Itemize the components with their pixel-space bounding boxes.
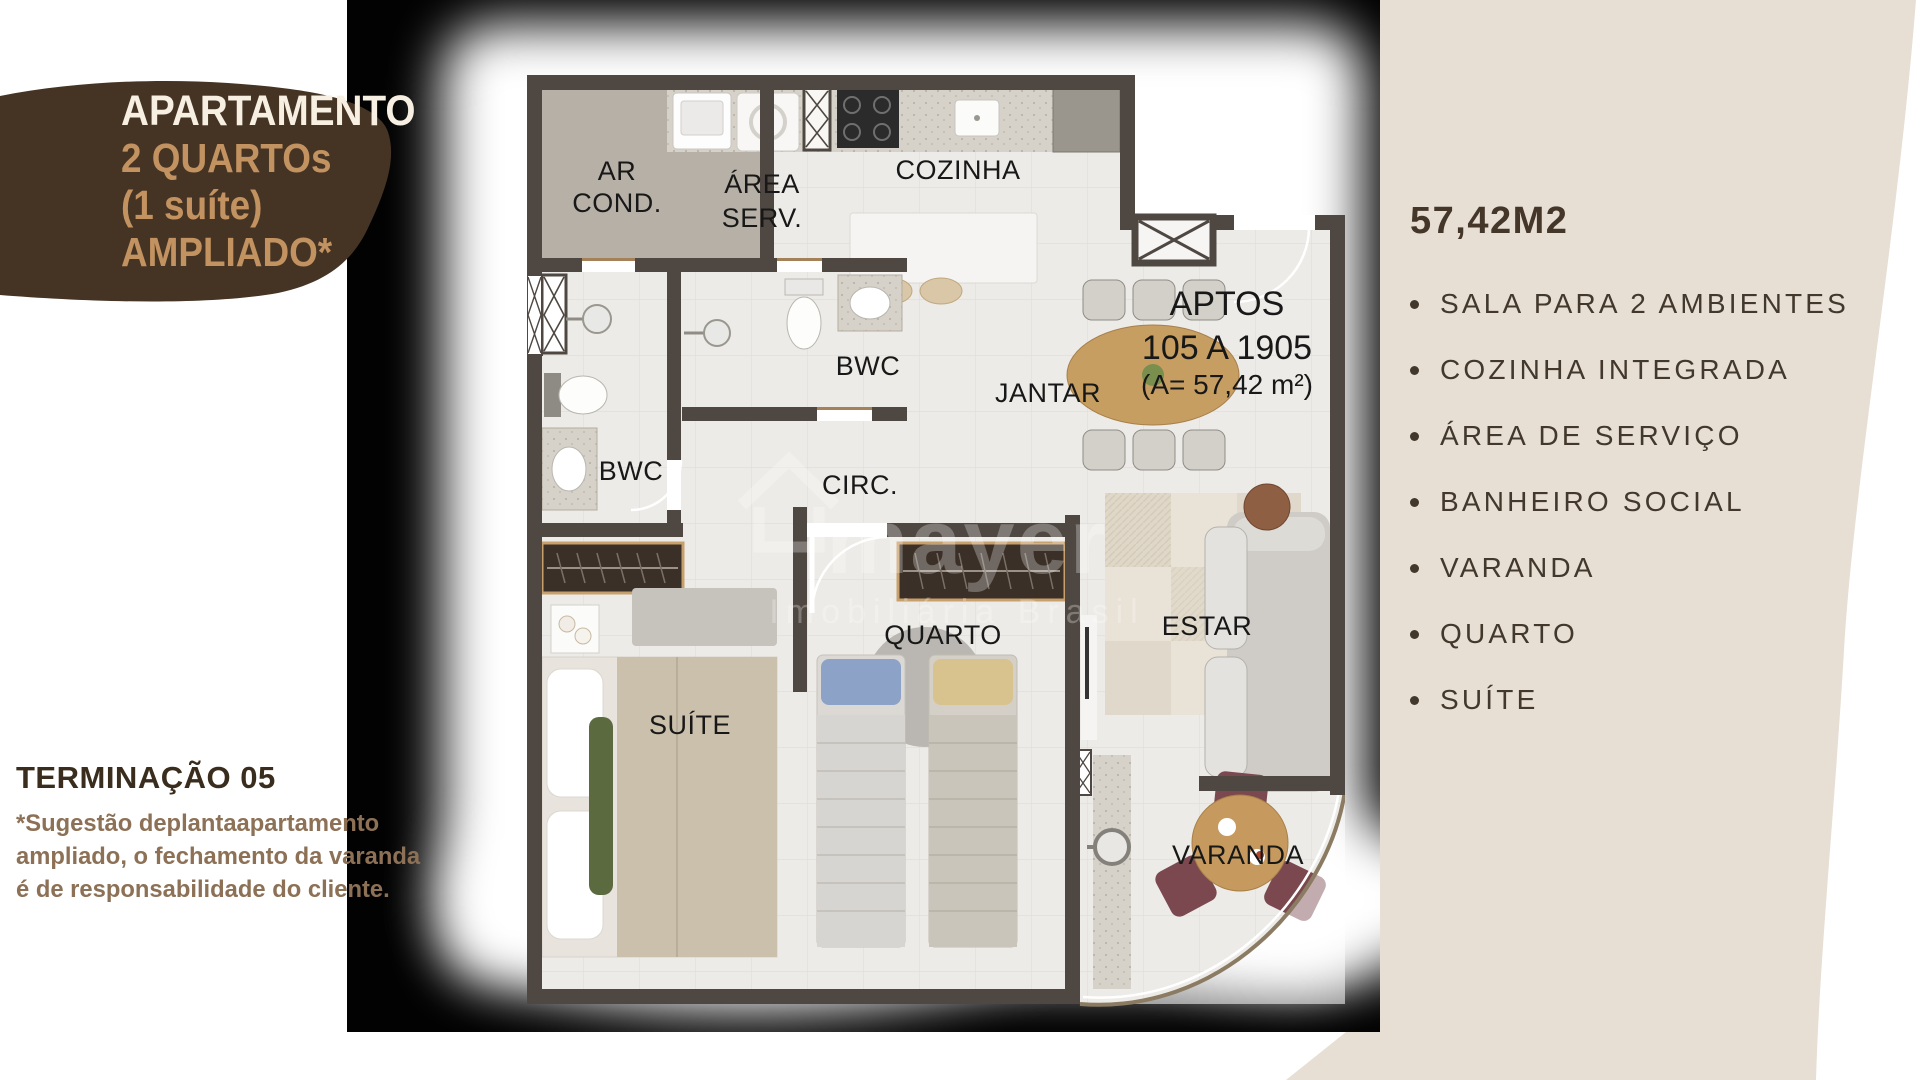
spec-label: VARANDA xyxy=(1440,552,1596,584)
room-label-ar-cond-1: AR xyxy=(598,156,637,186)
dining-chair-6 xyxy=(1183,430,1225,470)
room-label-bwc-social: BWC xyxy=(836,351,901,381)
termination-note-1: *Sugestão deplantaapartamento xyxy=(16,807,365,840)
spec-item-suite: SUÍTE xyxy=(1410,667,1840,733)
bullet-dot xyxy=(1410,696,1419,705)
room-label-area-serv-2: SERV. xyxy=(722,203,803,233)
suite-accent-pillow xyxy=(589,717,613,895)
bullet-dot xyxy=(1410,432,1419,441)
dining-chair-5 xyxy=(1133,430,1175,470)
nightstand-decor-1 xyxy=(559,616,575,632)
suite-bench xyxy=(632,588,777,646)
spec-item-sala: SALA PARA 2 AMBIENTES xyxy=(1410,271,1840,337)
sofa-cushion-2 xyxy=(1205,657,1247,777)
nightstand-decor-2 xyxy=(575,628,591,644)
specs-panel: 57,42M2 SALA PARA 2 AMBIENTES COZINHA IN… xyxy=(1410,200,1840,733)
room-label-ar-cond-2: COND. xyxy=(572,188,662,218)
room-label-quarto: QUARTO xyxy=(884,620,1002,650)
apts-line3: (A= 57,42 m²) xyxy=(1141,369,1313,400)
room-label-suite: SUÍTE xyxy=(649,710,731,740)
varanda-plate-1 xyxy=(1218,818,1236,836)
suite-shower-column xyxy=(542,275,566,353)
suite-duvet xyxy=(617,657,777,957)
laundry-tank-basin xyxy=(681,101,723,135)
quarto-bed2-duvet xyxy=(929,715,1017,947)
termination-note-2: ampliado, o fechamento da varanda xyxy=(16,840,365,873)
suite-nightstand xyxy=(551,605,599,653)
promo-title: APARTAMENTO xyxy=(121,88,391,135)
bullet-dot xyxy=(1410,366,1419,375)
side-table xyxy=(1244,484,1290,530)
room-label-estar: ESTAR xyxy=(1162,611,1253,641)
suite-shower-head xyxy=(583,305,611,333)
varanda-grill xyxy=(1095,830,1129,864)
spec-item-cozinha: COZINHA INTEGRADA xyxy=(1410,337,1840,403)
bullet-dot xyxy=(1410,564,1419,573)
tv xyxy=(1085,627,1089,699)
rug-sq-1 xyxy=(1105,493,1171,567)
kitchen-sink-drain xyxy=(974,115,980,121)
fridge-cabinet xyxy=(1053,88,1120,152)
social-vanity-sink xyxy=(850,287,890,319)
termination-note-3: é de responsabilidade do cliente. xyxy=(16,873,365,906)
quarto-bed2-pillow xyxy=(933,659,1013,705)
floorplan-panel: mayer Imobiliária Brasil AR COND. ÁREA S… xyxy=(347,0,1380,1032)
floorplan-drawing: mayer Imobiliária Brasil AR COND. ÁREA S… xyxy=(527,75,1345,1020)
room-label-varanda: VARANDA xyxy=(1172,840,1304,870)
suite-toilet-tank xyxy=(544,373,561,417)
promo-line-4: AMPLIADO* xyxy=(121,229,391,276)
bullet-dot xyxy=(1410,630,1419,639)
page: mayer Imobiliária Brasil AR COND. ÁREA S… xyxy=(0,0,1920,1080)
suite-toilet-bowl xyxy=(559,376,607,414)
termination-block: TERMINAÇÃO 05 *Sugestão deplantaapartame… xyxy=(16,760,376,906)
room-label-cozinha: COZINHA xyxy=(896,155,1021,185)
spec-label: COZINHA INTEGRADA xyxy=(1440,354,1790,386)
rug-sq-4 xyxy=(1105,641,1171,715)
promo-text-block: APARTAMENTO 2 QUARTOs (1 suíte) AMPLIADO… xyxy=(121,88,421,276)
apts-line1: APTOS xyxy=(1170,285,1285,323)
spec-label: BANHEIRO SOCIAL xyxy=(1440,486,1745,518)
social-shower-head xyxy=(704,320,730,346)
spec-item-area-servico: ÁREA DE SERVIÇO xyxy=(1410,403,1840,469)
dining-chair-1 xyxy=(1083,280,1125,320)
kitchen-island xyxy=(850,213,1037,283)
suite-vanity-sink xyxy=(552,447,586,491)
social-toilet-tank xyxy=(785,279,823,295)
quarto-bed1-pillow xyxy=(821,659,901,705)
social-toilet-bowl xyxy=(787,297,821,349)
spec-item-varanda: VARANDA xyxy=(1410,535,1840,601)
dining-chair-4 xyxy=(1083,430,1125,470)
bullet-dot xyxy=(1410,498,1419,507)
spec-label: SUÍTE xyxy=(1440,684,1538,716)
promo-line-2: 2 QUARTOs xyxy=(121,135,391,182)
promo-line-3: (1 suíte) xyxy=(121,182,391,229)
shaft xyxy=(1135,217,1213,263)
watermark-brand: mayer xyxy=(826,491,1107,593)
apts-line2: 105 A 1905 xyxy=(1142,329,1312,367)
spec-label: SALA PARA 2 AMBIENTES xyxy=(1440,288,1849,320)
spec-item-quarto: QUARTO xyxy=(1410,601,1840,667)
termination-title: TERMINAÇÃO 05 xyxy=(16,760,376,796)
quarto-bed1-duvet xyxy=(817,715,905,947)
area-title: 57,42M2 xyxy=(1410,200,1840,243)
room-label-circ: CIRC. xyxy=(822,470,898,500)
bullet-dot xyxy=(1410,300,1419,309)
room-label-area-serv-1: ÁREA xyxy=(724,169,800,199)
stool-2 xyxy=(920,278,962,304)
room-label-jantar: JANTAR xyxy=(995,378,1101,408)
duct-hatch xyxy=(804,88,830,150)
spec-label: QUARTO xyxy=(1440,618,1578,650)
spec-label: ÁREA DE SERVIÇO xyxy=(1440,420,1743,452)
spec-item-banheiro: BANHEIRO SOCIAL xyxy=(1410,469,1840,535)
varanda-counter-strip xyxy=(1093,755,1131,989)
room-label-bwc-suite: BWC xyxy=(599,456,664,486)
